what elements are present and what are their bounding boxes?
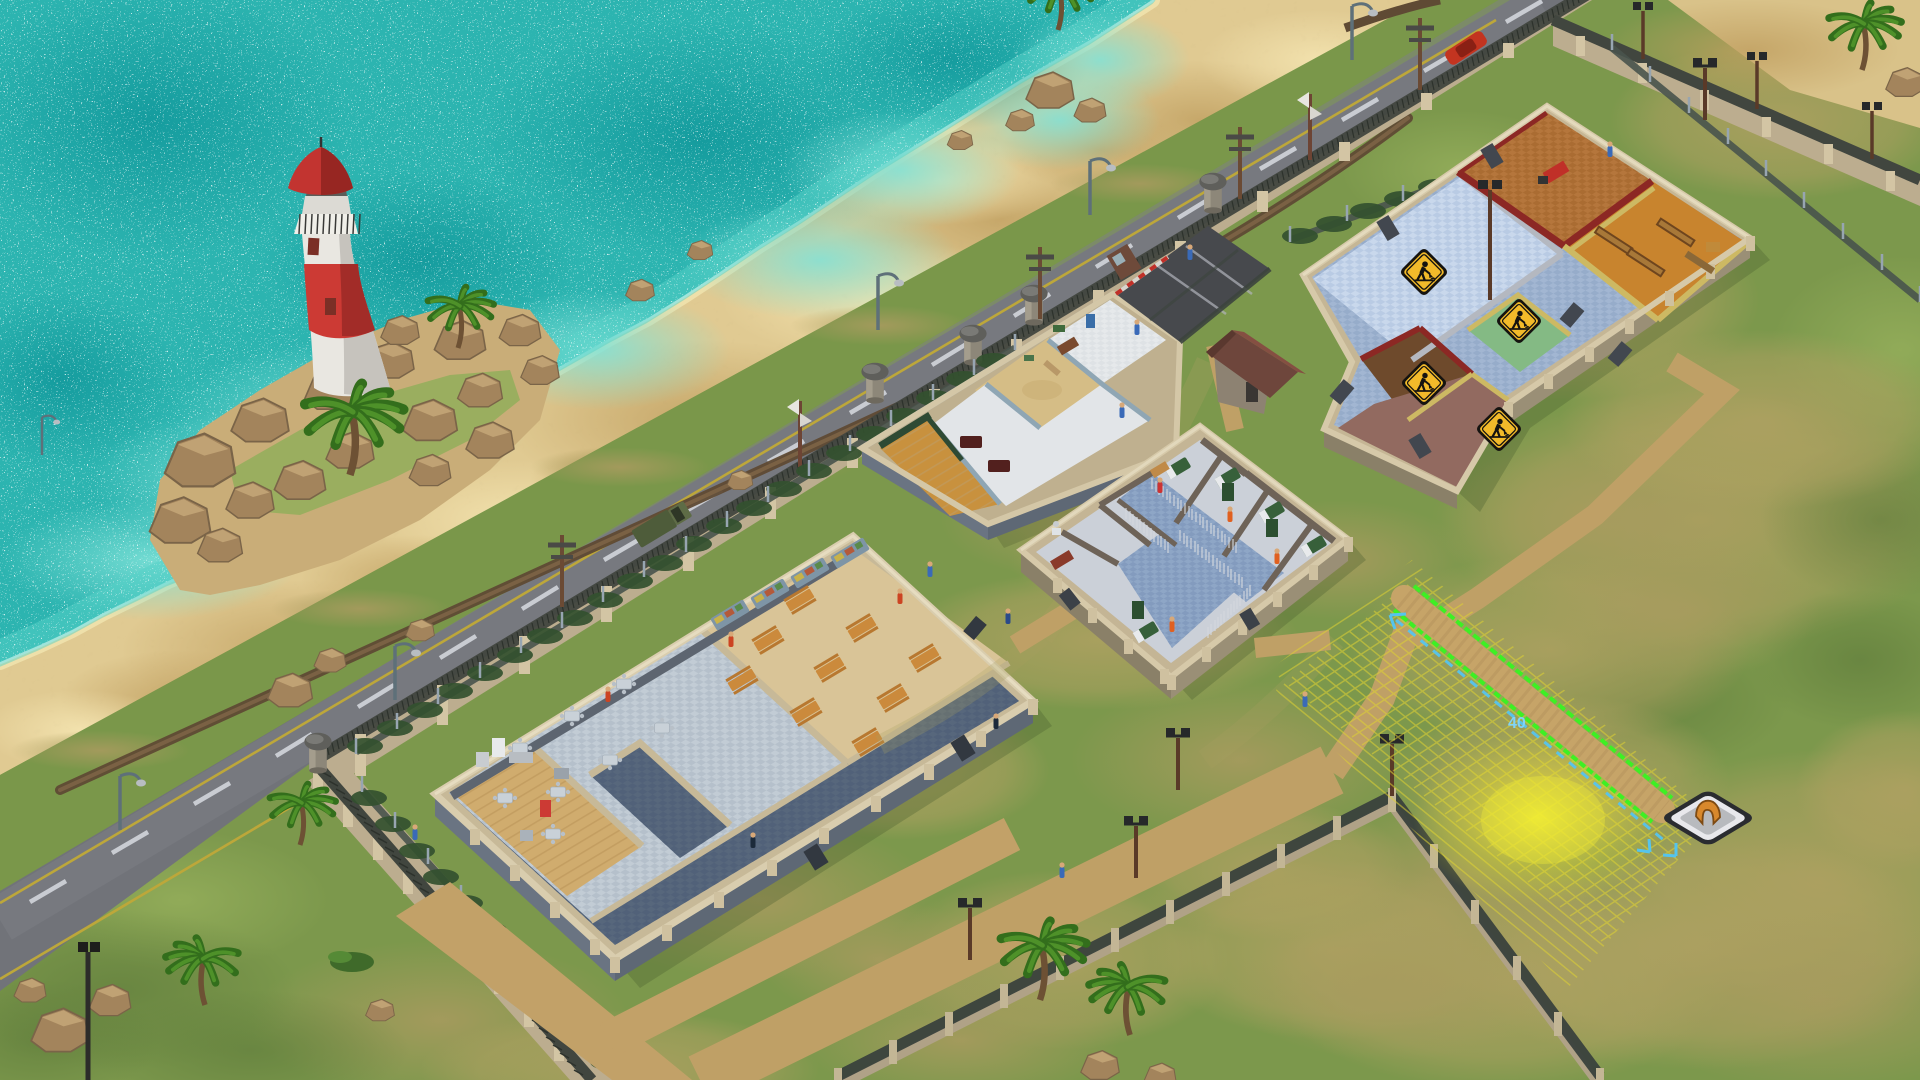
svg-text:40: 40 (1508, 715, 1526, 732)
